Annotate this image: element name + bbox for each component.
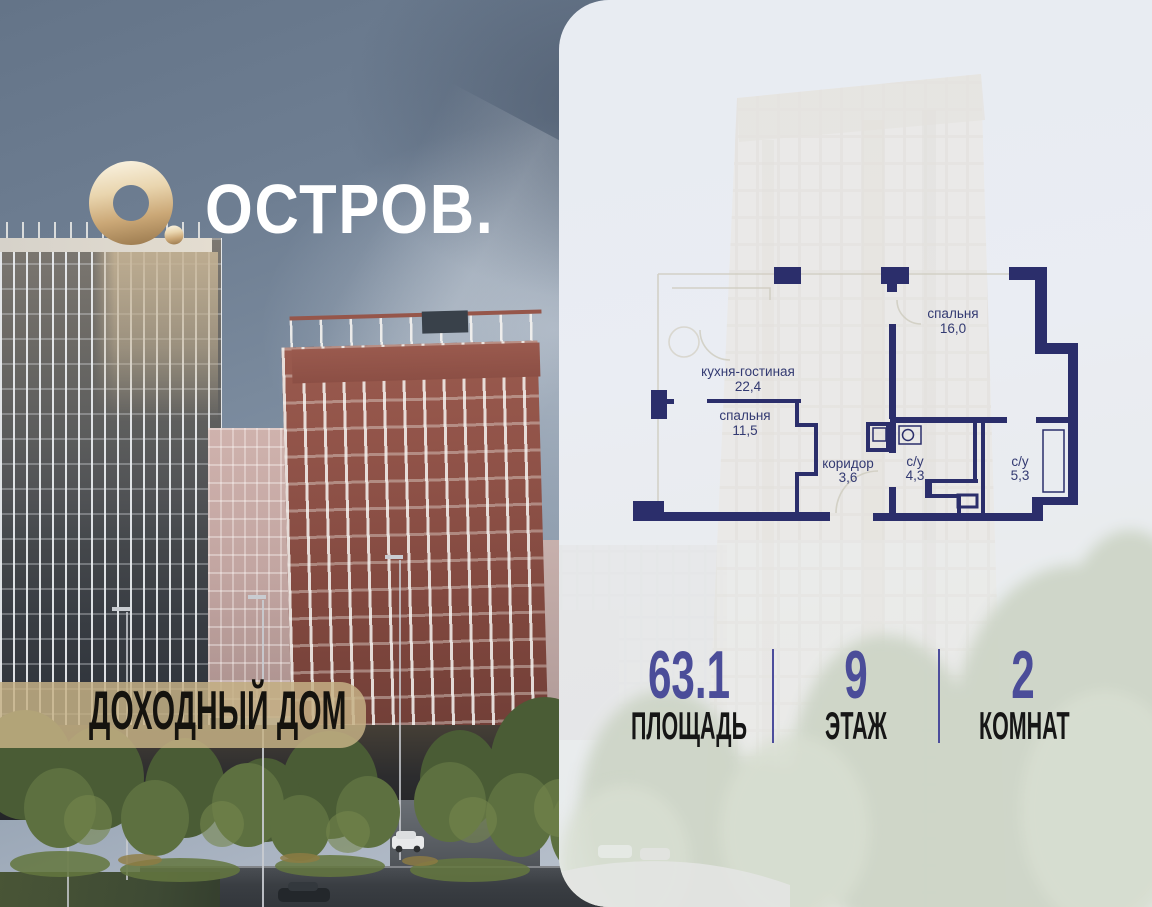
svg-text:22,4: 22,4 (735, 379, 762, 394)
svg-text:11,5: 11,5 (732, 423, 757, 438)
svg-text:с/у: с/у (906, 454, 924, 469)
svg-text:кухня-гостиная: кухня-гостиная (701, 364, 795, 379)
svg-text:коридор: коридор (822, 456, 874, 471)
svg-text:с/у: с/у (1011, 454, 1029, 469)
svg-text:спальня: спальня (927, 306, 978, 321)
svg-text:5,3: 5,3 (1011, 468, 1030, 483)
svg-text:4,3: 4,3 (906, 468, 925, 483)
svg-text:3,6: 3,6 (839, 470, 858, 485)
svg-text:спальня: спальня (719, 408, 770, 423)
svg-text:16,0: 16,0 (940, 321, 966, 336)
